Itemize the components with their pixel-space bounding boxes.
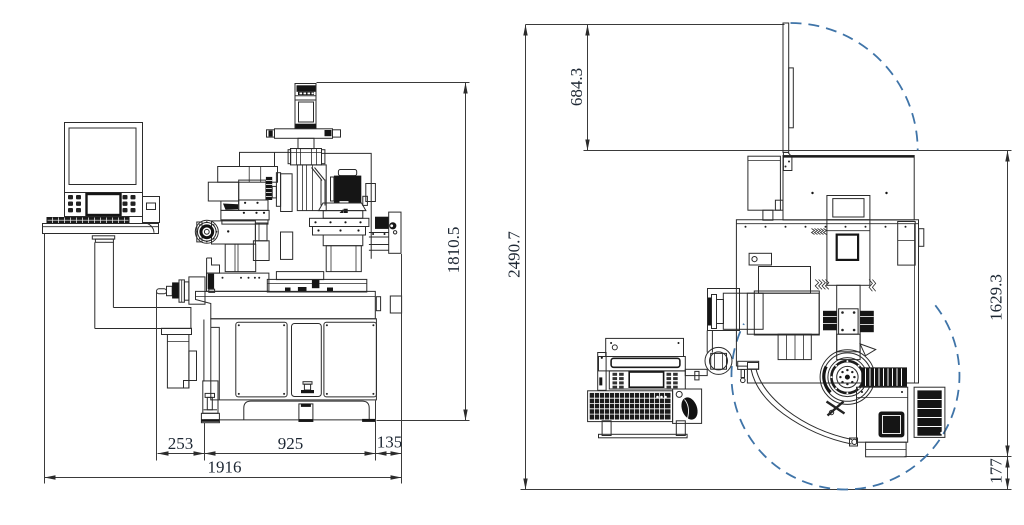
svg-text:684.3: 684.3	[567, 68, 586, 106]
svg-text:1810.5: 1810.5	[444, 227, 463, 274]
svg-text:1629.3: 1629.3	[987, 274, 1006, 321]
svg-text:135: 135	[377, 433, 403, 452]
svg-text:253: 253	[168, 434, 194, 453]
svg-text:177: 177	[987, 458, 1006, 484]
svg-text:925: 925	[278, 434, 304, 453]
svg-text:1916: 1916	[208, 458, 242, 477]
svg-text:2490.7: 2490.7	[505, 231, 524, 278]
